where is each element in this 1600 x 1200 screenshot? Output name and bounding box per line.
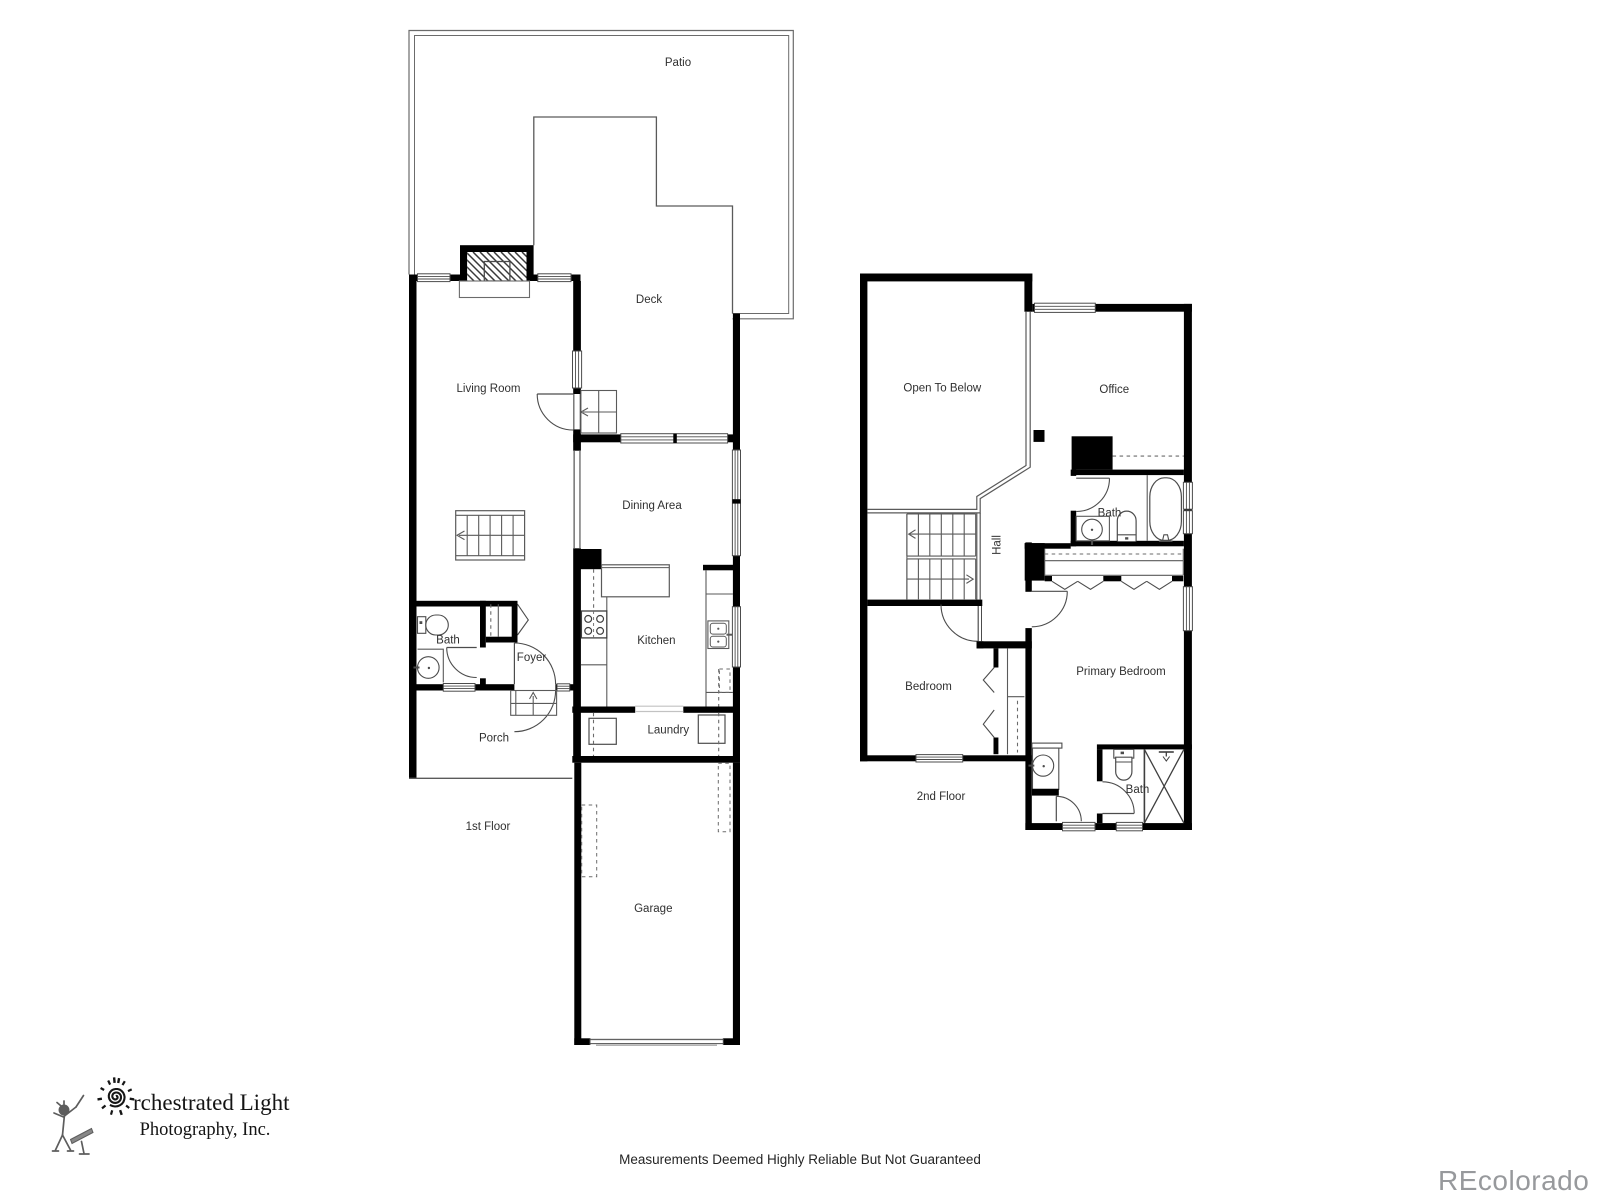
svg-text:Primary Bedroom: Primary Bedroom: [1076, 666, 1165, 678]
svg-text:Dining Area: Dining Area: [622, 500, 682, 512]
svg-text:Laundry: Laundry: [648, 725, 690, 737]
svg-text:Foyer: Foyer: [517, 652, 547, 664]
svg-text:Living Room: Living Room: [457, 383, 521, 395]
svg-text:2nd Floor: 2nd Floor: [917, 791, 966, 803]
svg-text:REcolorado: REcolorado: [1438, 1165, 1589, 1196]
svg-text:Photography, Inc.: Photography, Inc.: [140, 1120, 271, 1140]
svg-text:Patio: Patio: [665, 57, 691, 69]
svg-text:rchestrated Light: rchestrated Light: [133, 1090, 290, 1115]
svg-text:Open To Below: Open To Below: [903, 383, 981, 395]
svg-text:Garage: Garage: [634, 903, 672, 915]
svg-text:Bath: Bath: [436, 635, 460, 647]
svg-text:Measurements Deemed Highly Rel: Measurements Deemed Highly Reliable But …: [619, 1152, 981, 1167]
svg-text:Deck: Deck: [636, 294, 662, 306]
svg-text:Bath: Bath: [1126, 784, 1150, 796]
svg-text:Kitchen: Kitchen: [637, 635, 675, 647]
svg-text:1st Floor: 1st Floor: [466, 821, 511, 833]
svg-text:Office: Office: [1099, 384, 1129, 396]
svg-text:Hall: Hall: [992, 535, 1004, 555]
svg-text:Bedroom: Bedroom: [905, 681, 952, 693]
svg-text:Porch: Porch: [479, 733, 509, 745]
svg-text:Bath: Bath: [1098, 508, 1122, 520]
